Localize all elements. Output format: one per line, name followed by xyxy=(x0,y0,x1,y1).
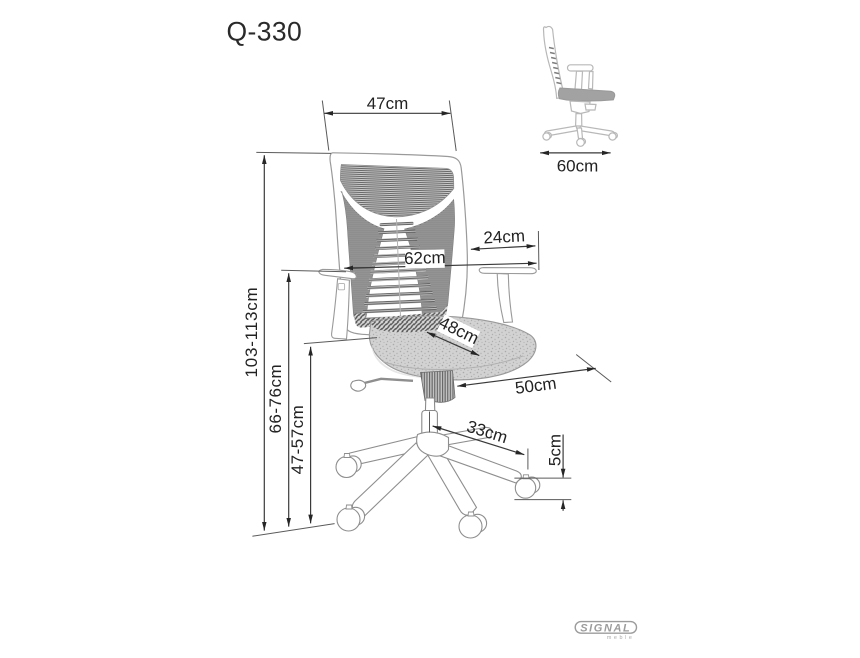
svg-text:60cm: 60cm xyxy=(557,157,599,176)
svg-text:5cm: 5cm xyxy=(546,434,565,466)
svg-text:66-76cm: 66-76cm xyxy=(266,364,285,434)
svg-text:62cm: 62cm xyxy=(404,248,446,268)
svg-text:meble: meble xyxy=(607,635,635,641)
svg-text:SIGNAL: SIGNAL xyxy=(580,623,631,635)
svg-text:24cm: 24cm xyxy=(483,226,526,247)
svg-text:103-113cm: 103-113cm xyxy=(242,287,261,378)
svg-text:Q-330: Q-330 xyxy=(227,17,303,47)
svg-text:47cm: 47cm xyxy=(367,94,409,113)
svg-text:47-57cm: 47-57cm xyxy=(288,405,307,475)
